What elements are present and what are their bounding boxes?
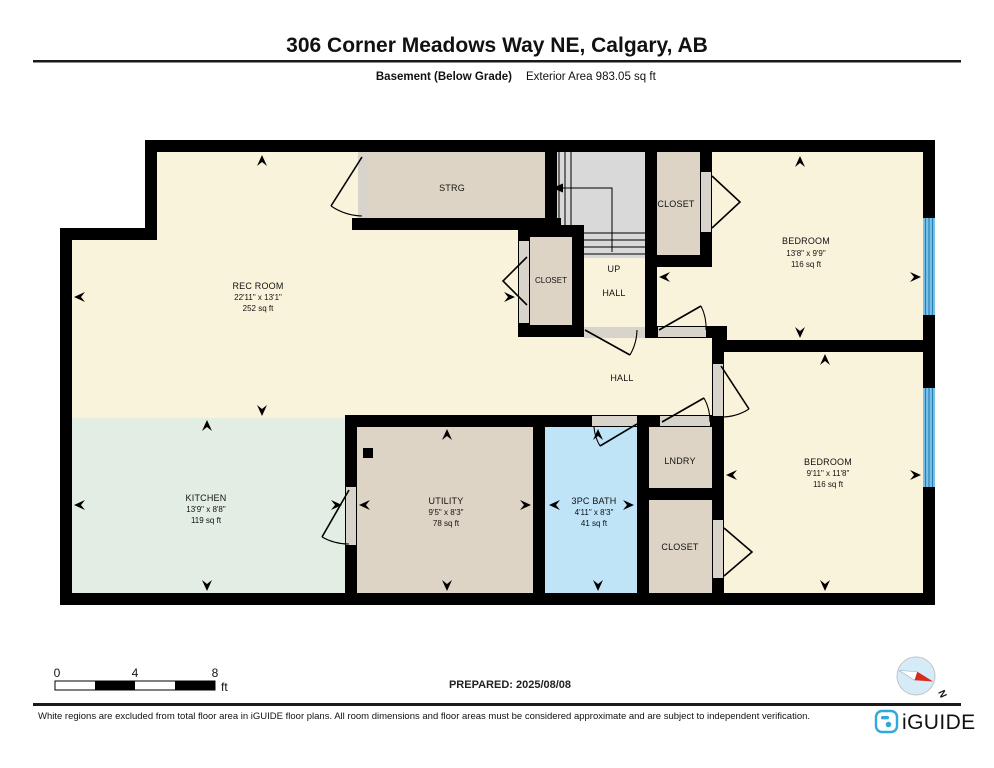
room-bath-fill: [533, 415, 649, 599]
room-utility-fill: [345, 415, 545, 599]
wall: [572, 225, 584, 337]
floor-label: Basement (Below Grade): [376, 71, 512, 83]
room-kitchen-dims: 13'9" x 8'8": [186, 505, 226, 514]
iguide-logo: iGUIDE: [876, 711, 976, 734]
room-closet-top-name: CLOSET: [657, 199, 695, 209]
room-bath-dims: 4'11" x 8'3": [575, 508, 614, 517]
room-bedroom-top-fill: [700, 146, 929, 346]
room-bedroom-top-name: BEDROOM: [782, 236, 830, 246]
wall: [712, 340, 929, 352]
room-bath-area: 41 sq ft: [581, 519, 608, 528]
north-label: N: [935, 689, 948, 700]
scale-unit-label: ft: [221, 680, 228, 694]
scale-tick-0: 0: [54, 666, 61, 680]
compass-icon: N: [897, 657, 948, 700]
door-sill: [713, 520, 723, 578]
stairs-hall-label: HALL: [602, 288, 625, 298]
iguide-logo-icon-dot: [886, 722, 892, 728]
wall: [645, 152, 657, 330]
exterior-area-label: Exterior Area 983.05 sq ft: [526, 71, 657, 83]
wall: [60, 593, 935, 605]
wall: [60, 228, 157, 240]
wall: [145, 140, 157, 240]
room-kitchen-name: KITCHEN: [186, 493, 227, 503]
floorplan-canvas: 306 Corner Meadows Way NE, Calgary, AB B…: [0, 0, 994, 768]
stairs-up-label: UP: [608, 264, 621, 274]
disclaimer-text: White regions are excluded from total fl…: [38, 711, 810, 722]
room-utility-area: 78 sq ft: [433, 519, 460, 528]
door-sill: [660, 416, 710, 426]
room-bedroom-bottom-area: 116 sq ft: [813, 480, 844, 489]
wall: [145, 140, 935, 152]
scale-bar-segment: [175, 681, 215, 690]
wall: [545, 146, 557, 222]
door-sill: [592, 416, 637, 426]
door-sill: [658, 327, 706, 337]
door-sill: [358, 154, 367, 218]
room-rec-dims: 22'11" x 13'1": [234, 293, 282, 302]
wall: [645, 255, 712, 267]
room-lndry-name: LNDRY: [664, 456, 695, 466]
scale-tick-4: 4: [132, 666, 139, 680]
title-divider: [33, 60, 961, 63]
scale-bar-segment: [95, 681, 135, 690]
iguide-logo-icon-bar: [881, 716, 889, 719]
furnace-marker: [363, 448, 373, 458]
room-closet-bottom-name: CLOSET: [661, 542, 699, 552]
room-bedroom-bottom-dims: 9'11" x 11'8": [807, 469, 850, 478]
footer-divider: [33, 703, 961, 706]
iguide-logo-icon: [876, 711, 897, 732]
scale-tick-8: 8: [212, 666, 219, 680]
room-strg-name: STRG: [439, 183, 465, 193]
wall: [637, 415, 649, 599]
room-utility-name: UTILITY: [429, 496, 464, 506]
iguide-wordmark: iGUIDE: [902, 711, 976, 734]
room-bedroom-bottom-name: BEDROOM: [804, 457, 852, 467]
scale-bar: 0 4 8 ft: [54, 666, 229, 694]
wall: [345, 415, 545, 427]
room-bath-name: 3PC BATH: [572, 496, 617, 506]
room-rec-name: REC ROOM: [232, 281, 283, 291]
wall: [533, 415, 545, 599]
page-title: 306 Corner Meadows Way NE, Calgary, AB: [286, 34, 708, 57]
room-rec-area: 252 sq ft: [243, 304, 274, 313]
room-fills: [66, 146, 929, 599]
room-kitchen-area: 119 sq ft: [191, 516, 222, 525]
wall: [645, 488, 722, 500]
floorplan-page: 306 Corner Meadows Way NE, Calgary, AB B…: [0, 0, 994, 768]
room-bedroom-top-ext-fill: [651, 260, 712, 334]
wall: [923, 140, 935, 605]
door-sill: [519, 241, 529, 323]
door-sill: [713, 364, 723, 416]
wall: [60, 228, 72, 605]
door-sill: [584, 327, 645, 338]
room-closet-mid-name: CLOSET: [535, 276, 567, 285]
room-bedroom-top-dims: 13'8" x 9'9": [786, 249, 826, 258]
door-sill: [701, 172, 711, 232]
room-utility-dims: 9'5" x 8'3": [429, 508, 464, 517]
room-hall-name: HALL: [610, 373, 633, 383]
prepared-date-label: PREPARED: 2025/08/08: [449, 679, 571, 691]
door-sill: [346, 487, 356, 545]
room-bedroom-top-area: 116 sq ft: [791, 260, 822, 269]
